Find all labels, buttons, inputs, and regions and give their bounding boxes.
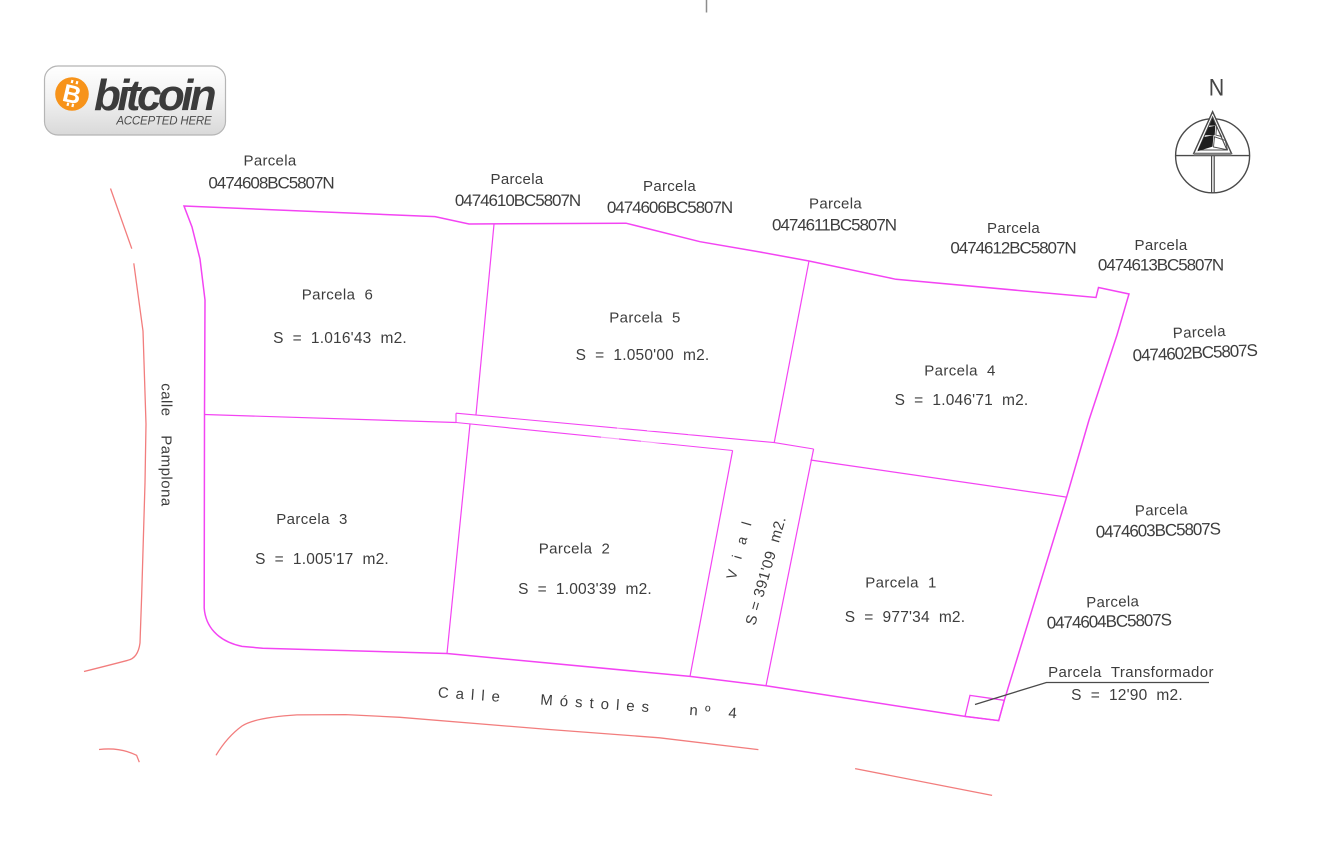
svg-text:calle Pamplona: calle Pamplona bbox=[158, 383, 175, 507]
svg-text:Parcela: Parcela bbox=[1086, 593, 1140, 611]
svg-text:0474610BC5807N: 0474610BC5807N bbox=[455, 191, 580, 210]
svg-text:Parcela: Parcela bbox=[1172, 323, 1226, 342]
svg-text:Parcela 5: Parcela 5 bbox=[609, 310, 681, 327]
svg-text:S = 1.003'39 m2.: S = 1.003'39 m2. bbox=[518, 581, 652, 598]
svg-text:bitcoin: bitcoin bbox=[94, 71, 216, 120]
svg-text:0474611BC5807N: 0474611BC5807N bbox=[772, 216, 896, 235]
svg-text:S = 12'90 m2.: S = 12'90 m2. bbox=[1071, 687, 1183, 704]
svg-text:Parcela 6: Parcela 6 bbox=[302, 287, 374, 304]
svg-text:0474604BC5807S: 0474604BC5807S bbox=[1046, 610, 1171, 632]
svg-text:0474603BC5807S: 0474603BC5807S bbox=[1095, 519, 1220, 541]
svg-text:0474602BC5807S: 0474602BC5807S bbox=[1132, 341, 1258, 365]
svg-text:Parcela 2: Parcela 2 bbox=[539, 541, 611, 558]
svg-text:0474613BC5807N: 0474613BC5807N bbox=[1098, 256, 1223, 275]
svg-text:Parcela: Parcela bbox=[809, 196, 862, 213]
svg-text:ACCEPTED HERE: ACCEPTED HERE bbox=[115, 116, 212, 128]
svg-text:S = 1.005'17 m2.: S = 1.005'17 m2. bbox=[255, 551, 389, 568]
svg-text:S = 1.046'71 m2.: S = 1.046'71 m2. bbox=[895, 392, 1029, 409]
svg-text:Parcela 3: Parcela 3 bbox=[276, 511, 348, 528]
svg-text:N: N bbox=[1209, 75, 1225, 102]
svg-text:0474612BC5807N: 0474612BC5807N bbox=[950, 239, 1075, 258]
svg-text:S = 1.016'43 m2.: S = 1.016'43 m2. bbox=[273, 330, 407, 347]
svg-text:Parcela: Parcela bbox=[491, 171, 544, 188]
svg-text:Parcela: Parcela bbox=[244, 153, 297, 170]
svg-text:0474608BC5807N: 0474608BC5807N bbox=[208, 174, 333, 193]
svg-text:Parcela: Parcela bbox=[987, 220, 1040, 237]
svg-text:Parcela 1: Parcela 1 bbox=[865, 575, 937, 592]
svg-text:0474606BC5807N: 0474606BC5807N bbox=[607, 198, 732, 217]
svg-text:Parcela: Parcela bbox=[1135, 237, 1188, 254]
svg-text:Parcela Transformador: Parcela Transformador bbox=[1048, 664, 1214, 681]
svg-text:Parcela 4: Parcela 4 bbox=[924, 363, 996, 380]
svg-text:S = 1.050'00 m2.: S = 1.050'00 m2. bbox=[576, 347, 710, 364]
svg-text:S = 977'34 m2.: S = 977'34 m2. bbox=[845, 609, 966, 626]
svg-text:V i a l: V i a l bbox=[723, 516, 756, 581]
svg-text:Parcela: Parcela bbox=[1135, 501, 1189, 519]
svg-text:Calle Móstoles nº 4: Calle Móstoles nº 4 bbox=[437, 684, 744, 722]
svg-text:Parcela: Parcela bbox=[643, 178, 696, 195]
